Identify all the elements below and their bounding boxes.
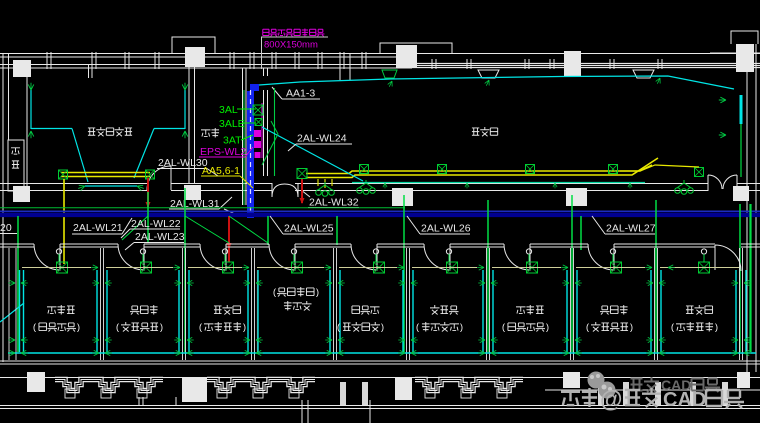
svg-text:): )	[77, 322, 80, 332]
svg-text:): )	[316, 287, 319, 297]
svg-text:): )	[243, 322, 246, 332]
svg-text:(: (	[416, 322, 419, 332]
svg-text:): )	[715, 322, 718, 332]
svg-text:3AL: 3AL	[219, 104, 238, 116]
svg-text:(: (	[33, 322, 36, 332]
svg-text:2AL-WL32: 2AL-WL32	[309, 197, 359, 209]
svg-text:(: (	[199, 322, 202, 332]
svg-text:): )	[460, 322, 463, 332]
svg-text:(: (	[273, 287, 276, 297]
svg-text:(: (	[116, 322, 119, 332]
svg-text:2AL-WL24: 2AL-WL24	[297, 133, 347, 145]
svg-text:2AL-WL22: 2AL-WL22	[131, 218, 181, 230]
svg-text:2AL-WL30: 2AL-WL30	[158, 157, 208, 169]
svg-text:): )	[381, 322, 384, 332]
svg-text:20: 20	[0, 222, 12, 234]
svg-text:(: (	[671, 322, 674, 332]
svg-text:2AL-WL23: 2AL-WL23	[135, 231, 185, 243]
svg-text:3AT: 3AT	[223, 135, 242, 147]
svg-text:(: (	[586, 322, 589, 332]
svg-text:): )	[546, 322, 549, 332]
svg-text:@: @	[600, 386, 622, 412]
svg-text:AA5,6-1: AA5,6-1	[202, 165, 240, 177]
svg-text:2AL-WL25: 2AL-WL25	[284, 223, 334, 235]
svg-text:(: (	[337, 322, 340, 332]
svg-text:2AL-WL26: 2AL-WL26	[421, 223, 471, 235]
svg-text:AA1-3: AA1-3	[286, 88, 315, 100]
svg-text:800X150mm: 800X150mm	[264, 40, 318, 51]
svg-text:3ALE: 3ALE	[219, 118, 245, 130]
svg-text:): )	[630, 322, 633, 332]
svg-text:(: (	[502, 322, 505, 332]
svg-text:): )	[160, 322, 163, 332]
svg-text:CAD: CAD	[663, 389, 706, 411]
svg-text:2AL-WL21: 2AL-WL21	[73, 222, 123, 234]
svg-text:2AL-WL27: 2AL-WL27	[606, 223, 656, 235]
